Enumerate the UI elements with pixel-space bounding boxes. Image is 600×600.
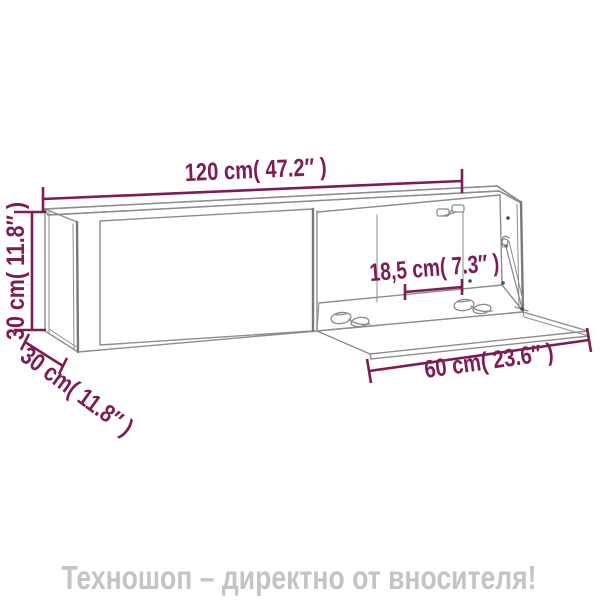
left-panel-bottom-edge: [45, 331, 78, 352]
cabinet-left-panel: [45, 209, 78, 352]
inner-width-label: 18,5 cm( 7.3″ ): [368, 249, 500, 287]
lid-stay-foot-pin: [520, 307, 524, 311]
flap-hinge-cup: [330, 311, 351, 325]
store-caption: Техношоп – директно от вносителя!: [62, 559, 537, 596]
diagram-canvas: 120 cm( 47.2″ ) 30 cm( 11.8″ ) 30 cm( 11…: [0, 0, 600, 600]
shelf-pin-hole: [468, 279, 472, 283]
lid-stay-top-joint: [502, 239, 508, 245]
depth-label: 30 cm( 11.8″ ): [15, 341, 138, 441]
dimension-depth: 30 cm( 11.8″ ): [15, 334, 138, 442]
dimension-height: 30 cm( 11.8″ ): [2, 202, 46, 340]
flap-hinge-cup: [453, 298, 474, 312]
cabinet-drawing: [45, 186, 589, 359]
height-label: 30 cm( 11.8″ ): [2, 202, 30, 340]
top-hinge: [437, 205, 464, 216]
top-hinge-plate: [452, 205, 464, 212]
cabinet-front-left-edge: [77, 222, 78, 352]
shelf-pin-hole: [501, 281, 505, 285]
shelf-pin-hole: [506, 216, 510, 220]
flap-hinge-left: [330, 311, 370, 328]
cabinet-left-door: [100, 209, 313, 345]
interior-back-bottom-edge: [319, 285, 502, 303]
left-door-face: [100, 209, 313, 345]
left-panel-thickness-line: [73, 224, 74, 349]
furniture-dimension-diagram: 120 cm( 47.2″ ) 30 cm( 11.8″ ) 30 cm( 11…: [0, 0, 600, 600]
flap-hinge-right: [453, 298, 492, 315]
width-label: 120 cm( 47.2″ ): [184, 153, 327, 187]
